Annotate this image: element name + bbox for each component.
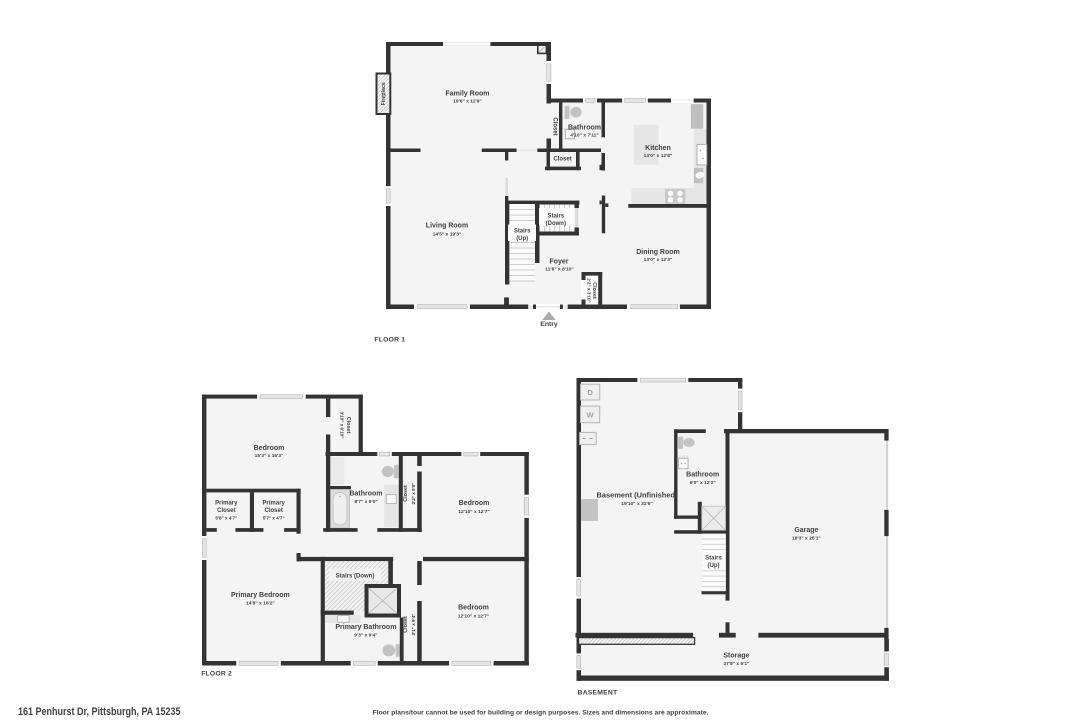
svg-text:19'10" x 31'6": 19'10" x 31'6" bbox=[621, 501, 652, 507]
svg-text:Kitchen: Kitchen bbox=[645, 145, 671, 152]
svg-text:5'7" x 4'7": 5'7" x 4'7" bbox=[263, 515, 285, 520]
svg-text:14'5" x 19'3": 14'5" x 19'3" bbox=[433, 231, 462, 237]
svg-text:13'0" x 12'8": 13'0" x 12'8" bbox=[644, 153, 673, 159]
svg-text:4'10" x 7'11": 4'10" x 7'11" bbox=[570, 132, 598, 138]
svg-text:(Up): (Up) bbox=[708, 563, 720, 569]
svg-text:Closet: Closet bbox=[265, 508, 283, 514]
svg-text:161 Penhurst Dr, Pittsburgh, P: 161 Penhurst Dr, Pittsburgh, PA 15235 bbox=[18, 706, 181, 718]
svg-text:Stairs: Stairs bbox=[547, 213, 564, 219]
svg-text:9'3" x 9'4": 9'3" x 9'4" bbox=[354, 632, 377, 638]
svg-text:Fireplace: Fireplace bbox=[381, 82, 387, 105]
svg-text:Bedroom: Bedroom bbox=[254, 445, 285, 452]
svg-text:19'6" x 12'9": 19'6" x 12'9" bbox=[453, 99, 482, 105]
svg-text:Entry: Entry bbox=[540, 321, 558, 328]
svg-text:Bathroom: Bathroom bbox=[686, 471, 719, 478]
svg-text:Closet: Closet bbox=[403, 485, 409, 502]
svg-text:2'1" x 9'4": 2'1" x 9'4" bbox=[411, 614, 416, 636]
svg-text:3'10" x 6'10": 3'10" x 6'10" bbox=[339, 412, 344, 439]
svg-text:Closet: Closet bbox=[553, 157, 571, 163]
svg-text:Basement (Unfinished): Basement (Unfinished) bbox=[597, 493, 678, 500]
svg-text:Primary: Primary bbox=[215, 500, 238, 506]
svg-text:Bathroom: Bathroom bbox=[568, 124, 601, 131]
svg-text:Living Room: Living Room bbox=[426, 222, 468, 229]
svg-text:14'8" x 16'2": 14'8" x 16'2" bbox=[246, 600, 275, 606]
svg-text:(Down): (Down) bbox=[546, 221, 566, 227]
svg-text:Stairs (Down): Stairs (Down) bbox=[336, 574, 375, 580]
svg-text:Floor plans/tour cannot be use: Floor plans/tour cannot be used for buil… bbox=[373, 709, 709, 716]
svg-text:Family Room: Family Room bbox=[446, 91, 490, 98]
svg-text:Dining Room: Dining Room bbox=[636, 249, 680, 256]
svg-text:W: W bbox=[587, 411, 595, 420]
svg-text:8'7" x 9'0": 8'7" x 9'0" bbox=[354, 499, 377, 505]
svg-text:Primary Bedroom: Primary Bedroom bbox=[231, 592, 290, 599]
svg-text:Stairs: Stairs bbox=[705, 555, 722, 561]
svg-text:Foyer: Foyer bbox=[549, 258, 568, 265]
svg-text:Primary Bathroom: Primary Bathroom bbox=[335, 624, 396, 631]
svg-text:Bedroom: Bedroom bbox=[459, 500, 490, 507]
svg-text:FLOOR 2: FLOOR 2 bbox=[201, 671, 232, 678]
svg-text:Storage: Storage bbox=[723, 652, 749, 659]
svg-text:5'8" x 4'7": 5'8" x 4'7" bbox=[215, 515, 237, 520]
svg-text:FLOOR 1: FLOOR 1 bbox=[374, 337, 405, 344]
svg-text:2'2" x 3'10": 2'2" x 3'10" bbox=[586, 278, 591, 302]
svg-text:13'0" x 12'3": 13'0" x 12'3" bbox=[644, 257, 673, 263]
svg-text:37'8" x 5'1": 37'8" x 5'1" bbox=[723, 661, 749, 667]
svg-text:Bathroom: Bathroom bbox=[349, 490, 382, 497]
svg-text:12'10" x 12'7": 12'10" x 12'7" bbox=[458, 509, 489, 515]
svg-text:6'0" x 12'2": 6'0" x 12'2" bbox=[690, 480, 716, 486]
svg-text:Garage: Garage bbox=[794, 527, 818, 534]
svg-text:12'10" x 12'7": 12'10" x 12'7" bbox=[458, 613, 489, 619]
svg-text:Closet: Closet bbox=[217, 508, 235, 514]
svg-text:(Up): (Up) bbox=[516, 236, 528, 242]
svg-text:15'3" x 16'3": 15'3" x 16'3" bbox=[255, 453, 284, 459]
svg-text:Closet: Closet bbox=[551, 117, 557, 135]
svg-text:BASEMENT: BASEMENT bbox=[578, 689, 618, 696]
svg-text:19'3" x 25'1": 19'3" x 25'1" bbox=[792, 536, 821, 542]
svg-text:Closet: Closet bbox=[345, 417, 351, 434]
svg-text:Primary: Primary bbox=[263, 500, 286, 506]
svg-text:Bedroom: Bedroom bbox=[458, 605, 489, 612]
svg-text:D: D bbox=[587, 388, 593, 397]
svg-text:Stairs: Stairs bbox=[514, 229, 531, 235]
svg-text:11'8" x 8'10": 11'8" x 8'10" bbox=[545, 267, 573, 273]
svg-text:2'2" x 9'0": 2'2" x 9'0" bbox=[411, 483, 416, 505]
svg-text:Closet: Closet bbox=[403, 616, 409, 633]
